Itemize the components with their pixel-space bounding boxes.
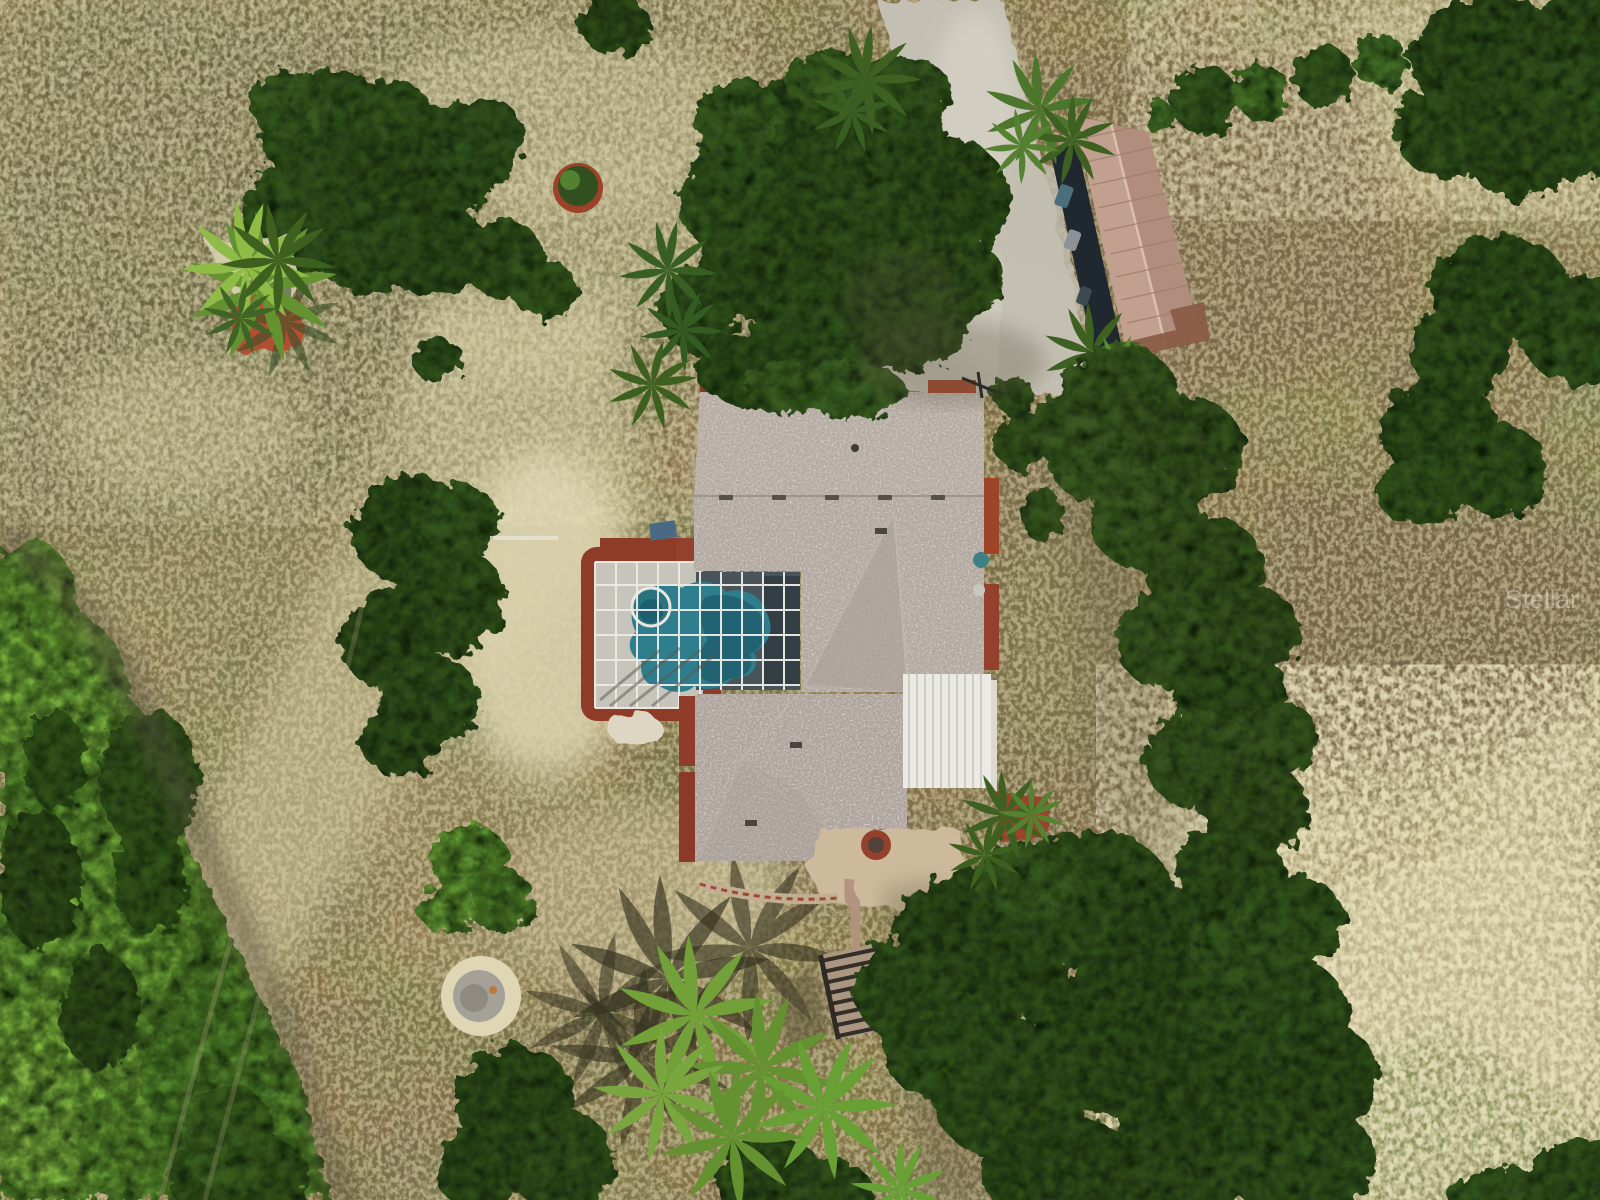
svg-text:Stellar: Stellar <box>1505 584 1579 614</box>
